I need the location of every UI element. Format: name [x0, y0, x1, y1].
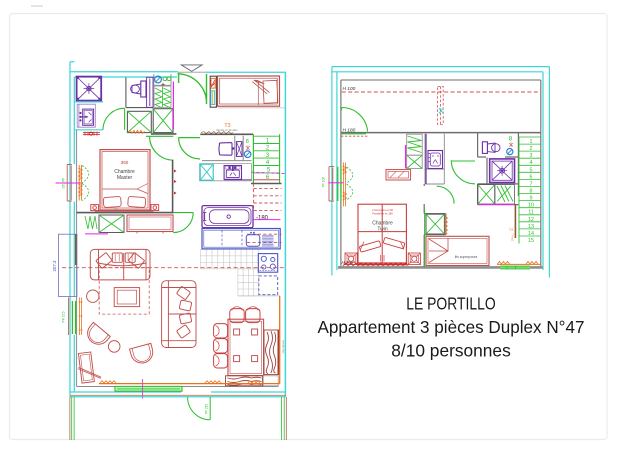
svg-text:9: 9 — [530, 196, 533, 202]
svg-text:2 Sommiers en 90: 2 Sommiers en 90 — [372, 208, 394, 212]
svg-text:14: 14 — [528, 231, 534, 237]
svg-text:T3: T3 — [509, 228, 513, 232]
svg-text:PF 215: PF 215 — [62, 311, 66, 322]
svg-text:6: 6 — [530, 174, 533, 180]
svg-text:H 100: H 100 — [343, 86, 356, 92]
svg-text:8/10 personnes: 8/10 personnes — [391, 341, 511, 361]
svg-text:PF 215: PF 215 — [205, 404, 209, 415]
svg-text:360: 360 — [121, 160, 129, 165]
svg-text:Master: Master — [117, 175, 133, 181]
svg-text:lits superposés: lits superposés — [455, 255, 478, 259]
svg-text:Me fais un clin alpin: Me fais un clin alpin — [217, 129, 239, 132]
svg-text:180: 180 — [114, 207, 119, 211]
svg-text:10: 10 — [528, 203, 534, 209]
svg-text:LE PORTILLO: LE PORTILLO — [406, 294, 496, 314]
svg-text:4: 4 — [530, 160, 533, 166]
svg-text:7: 7 — [530, 181, 533, 187]
svg-text:15: 15 — [528, 238, 534, 244]
svg-text:PF 100: PF 100 — [322, 177, 326, 188]
svg-text:5: 5 — [530, 167, 533, 173]
svg-text:8: 8 — [246, 139, 249, 145]
svg-text:250 PF: 250 PF — [62, 178, 66, 189]
svg-text:Twin: Twin — [377, 227, 388, 233]
svg-text:meuble bas: meuble bas — [281, 340, 285, 354]
svg-text:7.4 m2: 7.4 m2 — [511, 233, 515, 241]
svg-text:3: 3 — [530, 153, 533, 159]
svg-text:H 180: H 180 — [343, 128, 356, 134]
svg-text:12: 12 — [528, 217, 534, 223]
svg-text:Appartement 3 pièces Duplex N°: Appartement 3 pièces Duplex N°47 — [318, 317, 585, 337]
svg-text:Possibilite en 180: Possibilite en 180 — [372, 211, 393, 215]
svg-text:2: 2 — [530, 146, 533, 152]
svg-text:8: 8 — [509, 135, 513, 142]
svg-text:13: 13 — [528, 224, 534, 230]
svg-text:8: 8 — [530, 189, 533, 195]
svg-text:-180: -180 — [256, 216, 269, 222]
svg-text:207.3: 207.3 — [52, 260, 57, 272]
svg-text:1: 1 — [530, 139, 533, 145]
svg-text:11: 11 — [528, 210, 534, 216]
